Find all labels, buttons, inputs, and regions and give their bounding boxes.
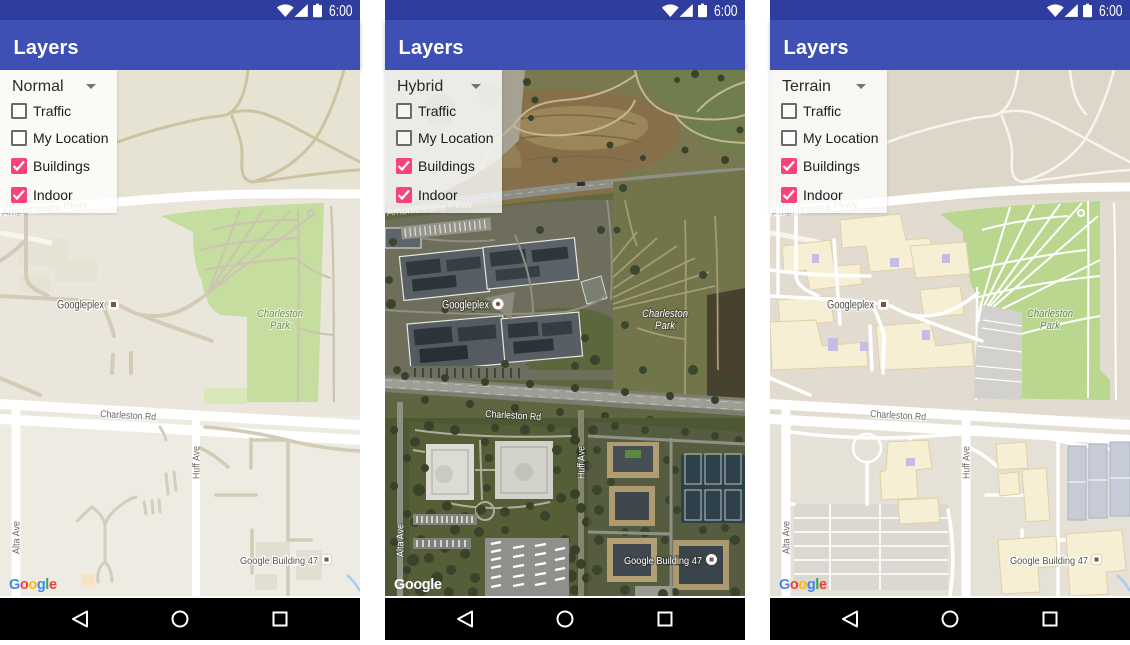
svg-text:Charleston: Charleston [1027,308,1073,320]
svg-text:Google: Google [9,577,57,593]
svg-text:Google Building 47: Google Building 47 [240,555,318,567]
svg-text:Charleston: Charleston [642,308,688,320]
svg-text:Google: Google [394,577,442,593]
svg-text:6:00: 6:00 [329,3,353,20]
svg-text:Huff Ave: Huff Ave [962,446,973,479]
svg-text:Googleplex: Googleplex [442,300,489,312]
svg-text:Park: Park [1040,320,1060,332]
svg-text:Alta Ave: Alta Ave [782,521,793,554]
svg-text:Park: Park [655,320,675,332]
svg-text:Huff Ave: Huff Ave [192,446,203,479]
svg-text:6:00: 6:00 [714,3,738,20]
svg-text:Huff Ave: Huff Ave [577,446,588,479]
svg-text:Park: Park [270,320,290,332]
svg-text:Google Building 47: Google Building 47 [624,555,702,567]
svg-text:Google Building 47: Google Building 47 [1010,555,1088,567]
svg-text:Googleplex: Googleplex [57,300,104,312]
svg-text:Alta Ave: Alta Ave [396,524,407,557]
svg-text:6:00: 6:00 [1099,3,1123,20]
svg-text:Alta Ave: Alta Ave [12,521,23,554]
svg-text:Googleplex: Googleplex [827,300,874,312]
svg-text:Google: Google [779,577,827,593]
svg-text:Charleston: Charleston [257,308,303,320]
